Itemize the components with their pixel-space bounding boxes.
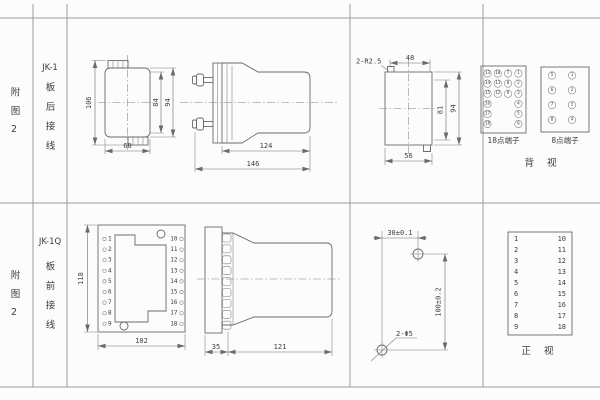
dim-94: 94 [164, 98, 172, 106]
label-8pt: 8点端子 [551, 135, 579, 145]
table-number: 18 [558, 323, 566, 331]
terminal-circle: 1 [571, 72, 574, 78]
dim-35: 35 [212, 343, 220, 351]
terminal-circle: 4 [571, 116, 574, 122]
terminal-number: 9 [108, 320, 112, 327]
mounting-hole [120, 322, 128, 330]
terminal-layout-18pt: 13 14 15 16 17 18 10 11 12 7 8 9 1 2 3 4… [481, 66, 526, 145]
terminal-circle: 17 [485, 110, 491, 116]
terminal-circle: 10 [495, 70, 501, 76]
table-number: 17 [558, 312, 566, 320]
note-2-r2.5: 2-R2.5 [356, 58, 381, 66]
terminal-circle: 2 [517, 80, 520, 86]
terminal-circle: 11 [495, 80, 501, 86]
dim-94-rear: 94 [450, 104, 458, 112]
terminal-circle: 13 [485, 70, 491, 76]
terminal-number: 13 [170, 267, 178, 274]
table-number: 6 [514, 290, 518, 298]
terminal-number: 6 [108, 289, 112, 296]
table-number: 8 [514, 312, 518, 320]
table-number: 7 [514, 301, 518, 309]
terminal-circle: 7 [507, 70, 510, 76]
terminal-number: 18 [170, 320, 178, 327]
terminal-circle: 3 [517, 90, 520, 96]
terminal-number: 11 [170, 246, 178, 253]
jk1-rear-view-drawing: 2-R2.5 48 81 94 56 [356, 54, 462, 165]
terminal-circle: 8 [551, 116, 554, 122]
terminal-number: 16 [170, 299, 178, 306]
table-number: 2 [514, 246, 518, 254]
terminal-circle: 15 [485, 90, 491, 96]
terminal-circle: 16 [485, 100, 491, 106]
terminal-circle: 8 [507, 80, 510, 86]
dimension-drawings: 106 84 94 60 124 [0, 0, 600, 400]
terminal-number: 14 [170, 278, 178, 285]
terminal-circle: 5 [517, 110, 520, 116]
terminal-table-front-view: 1 2 3 4 5 6 7 8 9 10 11 12 13 14 15 16 1… [508, 232, 572, 357]
dim-106: 106 [85, 96, 93, 109]
dim-30: 30±0.1 [387, 229, 412, 237]
table-number: 4 [514, 268, 518, 276]
table-number: 1 [514, 235, 518, 243]
mounting-hole [157, 230, 165, 238]
table-number: 16 [558, 301, 566, 309]
terminal-number: 1 [108, 236, 112, 243]
terminal-number: 10 [170, 236, 178, 243]
terminal-circle: 14 [485, 80, 491, 86]
terminal-circle: 18 [485, 121, 491, 127]
front-view-label: 正 视 [521, 345, 558, 357]
dim-124: 124 [260, 142, 273, 150]
terminal-circle: 7 [551, 102, 554, 108]
jk1q-side-view-drawing: 35 121 [197, 227, 340, 356]
terminal-circle: 2 [571, 87, 574, 93]
table-number: 11 [558, 246, 566, 254]
table-number: 9 [514, 323, 518, 331]
table-number: 5 [514, 279, 518, 287]
dim-100: 100±0.2 [435, 287, 443, 317]
terminal-circle: 5 [551, 72, 554, 78]
dim-56: 56 [404, 152, 412, 160]
terminal-number: 3 [108, 257, 112, 264]
terminal-number: 2 [108, 246, 112, 253]
terminal-circle: 4 [517, 100, 520, 106]
note-2-phi5: 2-Φ5 [396, 330, 413, 338]
jk1-side-view-drawing: 124 146 [180, 63, 338, 172]
terminal-number: 12 [170, 257, 178, 264]
terminal-circle: 1 [517, 70, 520, 76]
terminal-circle: 12 [495, 90, 501, 96]
terminal-layout-8pt: 5 6 7 8 1 2 3 4 8点端子 [541, 67, 589, 145]
terminal-circle: 3 [571, 102, 574, 108]
dim-146: 146 [247, 160, 260, 168]
table-number: 13 [558, 268, 566, 276]
table-number: 15 [558, 290, 566, 298]
terminal-screw-bottom [193, 118, 214, 130]
dim-118: 118 [77, 272, 85, 285]
dim-81: 81 [437, 106, 445, 114]
dim-121: 121 [274, 343, 287, 351]
terminal-circle: 6 [517, 121, 520, 127]
drilling-plan-drawing: 30±0.1 100±0.2 2-Φ5 [371, 229, 448, 361]
terminal-number: 7 [108, 299, 112, 306]
table-number: 10 [558, 235, 566, 243]
jk1q-front-view-drawing: 1 2 3 4 5 6 7 8 9 10 11 12 13 14 15 16 1… [77, 225, 185, 350]
table-number: 3 [514, 257, 518, 265]
terminal-circle: 9 [507, 90, 510, 96]
technical-drawing-page: 附图2 附图2 JK-1 板后接线 JK-1Q 板前接线 [0, 0, 600, 400]
label-18pt: 18点端子 [487, 135, 520, 145]
terminal-number: 4 [108, 267, 112, 274]
dim-48: 48 [406, 54, 414, 62]
dim-84: 84 [152, 98, 160, 106]
dim-102: 102 [135, 337, 148, 345]
terminal-screw-top [193, 74, 214, 86]
terminal-circle: 6 [551, 87, 554, 93]
terminal-number: 15 [170, 289, 178, 296]
table-number: 12 [558, 257, 566, 265]
jk1-front-view-drawing: 106 84 94 60 [85, 55, 176, 154]
terminal-number: 17 [170, 310, 178, 317]
dim-60: 60 [123, 142, 131, 150]
table-number: 14 [558, 279, 566, 287]
terminal-number: 5 [108, 278, 112, 285]
rear-view-label: 背 视 [524, 157, 561, 169]
table-grid [0, 4, 600, 387]
terminal-number: 8 [108, 310, 112, 317]
